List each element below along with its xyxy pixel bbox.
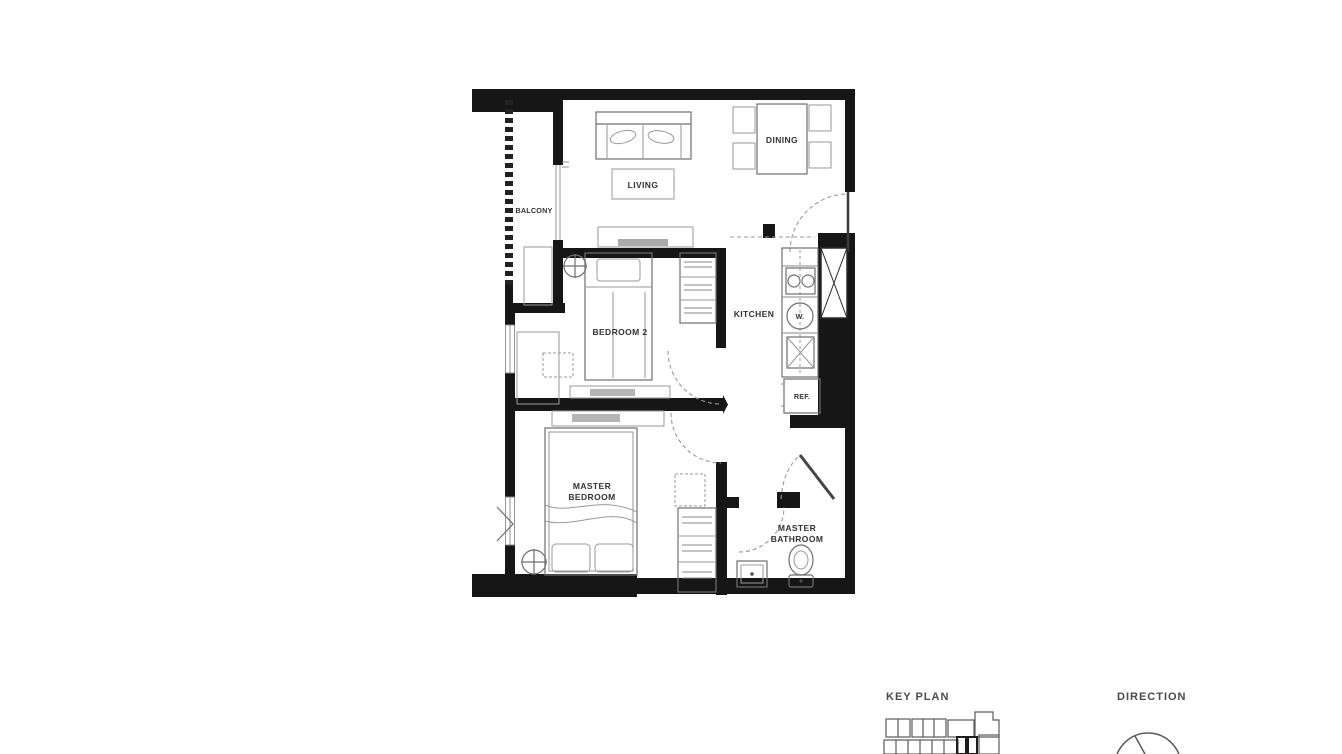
floor-plan-drawing: LIVING DINING BALCONY W. (0, 0, 1342, 754)
tv-console-living (598, 227, 693, 247)
balcony-sliding-door (556, 162, 569, 240)
sofa (596, 112, 691, 159)
key-plan-unit-highlight (968, 737, 977, 754)
bedroom2-door-arc (668, 351, 721, 404)
bed-bedroom2 (585, 253, 652, 380)
window-master-bedroom (497, 497, 515, 545)
floor-plan-page: LIVING DINING BALCONY W. (0, 0, 1342, 754)
balcony-bench (524, 247, 552, 305)
key-plan-title: KEY PLAN (886, 691, 949, 703)
master-bathroom-label-line2: BATHROOM (771, 534, 824, 544)
wardrobe-bedroom2 (680, 253, 716, 323)
window-marker-icon (497, 507, 513, 541)
washer-label: W. (796, 312, 805, 321)
dining-label: DINING (766, 135, 798, 145)
stove-icon (786, 268, 815, 294)
tv-console-bedroom2 (570, 386, 670, 398)
living-label: LIVING (628, 180, 659, 190)
key-plan-building (884, 712, 999, 754)
master-bedroom-label-line2: BEDROOM (568, 492, 615, 502)
dresser-master (675, 474, 705, 506)
desk-bedroom2 (517, 332, 573, 404)
compass-icon (1115, 733, 1181, 754)
kitchen-label: KITCHEN (734, 309, 775, 319)
bedroom2-label: BEDROOM 2 (592, 327, 647, 337)
service-shaft (821, 248, 847, 318)
tv-console-master (552, 411, 664, 426)
master-bedroom-label-line1: MASTER (573, 481, 611, 491)
walls (472, 89, 855, 597)
direction-title: DIRECTION (1117, 691, 1187, 703)
ceiling-symbol-master (521, 549, 547, 575)
master-bedroom-door-arc (671, 413, 721, 463)
window-bedroom2 (506, 325, 515, 373)
master-bathroom-label-line1: MASTER (778, 523, 816, 533)
fridge-label: REF. (794, 392, 810, 401)
vanity-sink-icon (737, 561, 767, 587)
balcony-label: BALCONY (516, 206, 553, 215)
